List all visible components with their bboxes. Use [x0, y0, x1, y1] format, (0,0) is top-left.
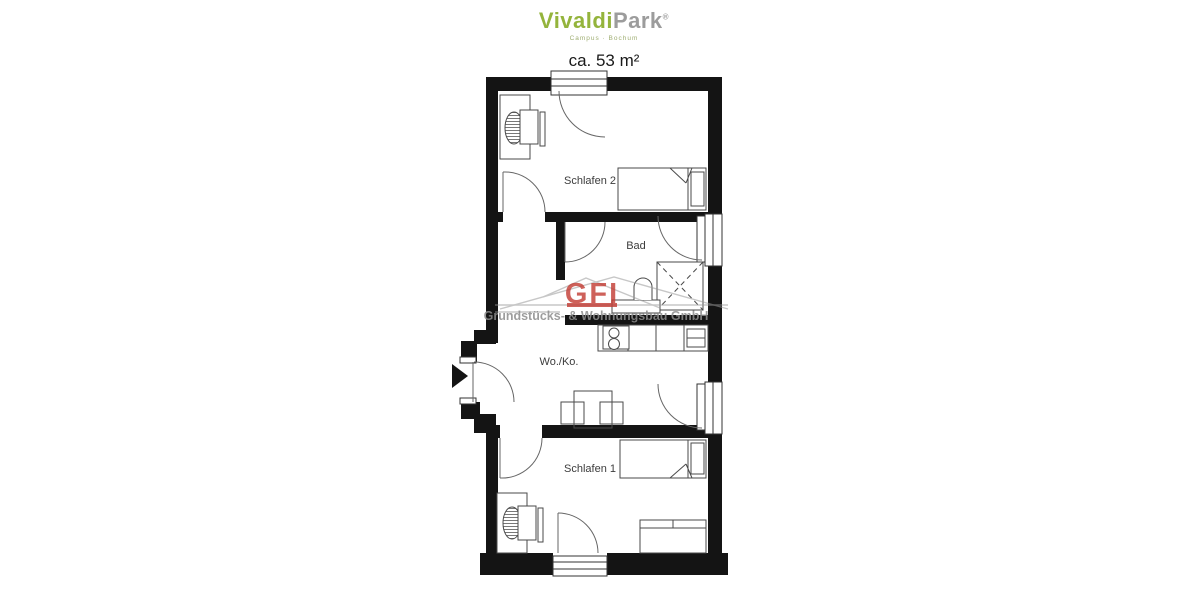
room-label-bad: Bad — [626, 240, 646, 252]
watermark-company: Grundstücks- & Wohnungsbau GmbH — [484, 309, 709, 323]
furniture-schlafen1 — [497, 440, 706, 553]
watermark-abbrev-group: GFI — [565, 278, 619, 310]
window-bottom — [553, 556, 607, 576]
door-schlafen1 — [500, 438, 542, 478]
room-label-living: Wo./Ko. — [540, 356, 579, 368]
window-swing-right-bad — [658, 216, 702, 260]
room-label-schlafen2: Schlafen 2 — [564, 175, 616, 187]
furniture-schlafen2 — [500, 95, 706, 210]
entrance-arrow-icon — [452, 364, 468, 388]
chair-left — [561, 402, 584, 424]
bed-schlafen2 — [618, 168, 706, 210]
sink — [687, 329, 705, 347]
door-schlafen2 — [503, 172, 545, 212]
kitchen-counter — [598, 325, 708, 351]
room-label-schlafen1: Schlafen 1 — [564, 463, 616, 475]
entrance-sills — [460, 357, 476, 404]
window-right-bad — [697, 214, 722, 266]
wardrobe — [640, 520, 706, 553]
shower — [657, 262, 703, 310]
window-swing-top — [559, 91, 605, 137]
desk-chair-schlafen1 — [503, 506, 543, 542]
stove — [603, 326, 629, 350]
door-bad — [565, 222, 605, 262]
floor-plan: Schlafen 2 Bad Wo./Ko. Schlafen 1 GFI Gr… — [0, 0, 1200, 600]
watermark-underline — [567, 303, 617, 307]
window-swing-bottom — [558, 513, 598, 553]
window-right-living — [697, 382, 722, 434]
furniture-living — [561, 391, 623, 428]
floorplan-page: VivaldiPark® Campus · Bochum ca. 53 m² — [0, 0, 1200, 600]
door-entrance — [473, 362, 514, 402]
window-swing-right-living — [658, 384, 702, 428]
bed-schlafen1 — [620, 440, 706, 478]
desk-chair-schlafen2 — [505, 110, 545, 146]
